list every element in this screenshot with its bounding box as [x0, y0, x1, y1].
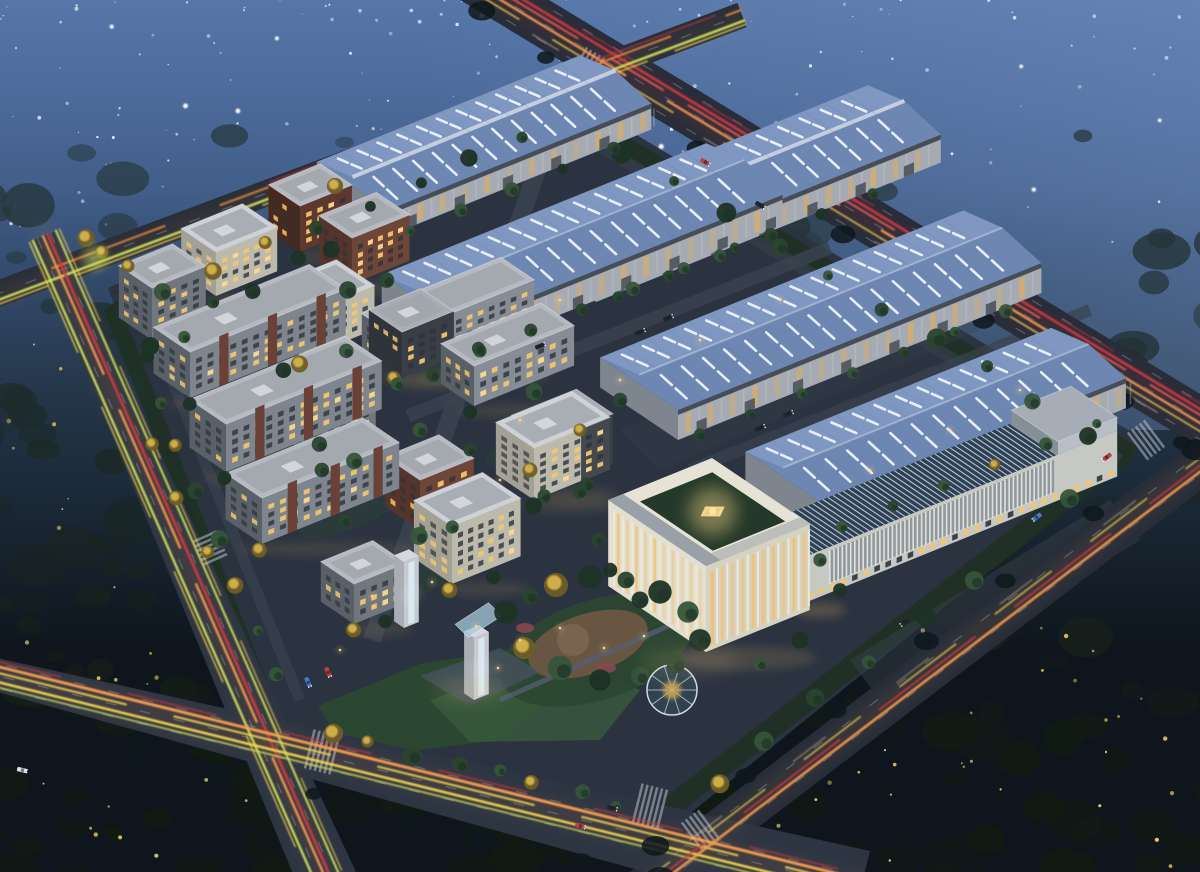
rendering-viewport: Night-time aerial architectural renderin… — [0, 0, 1200, 872]
aerial-night-rendering — [0, 0, 1200, 872]
